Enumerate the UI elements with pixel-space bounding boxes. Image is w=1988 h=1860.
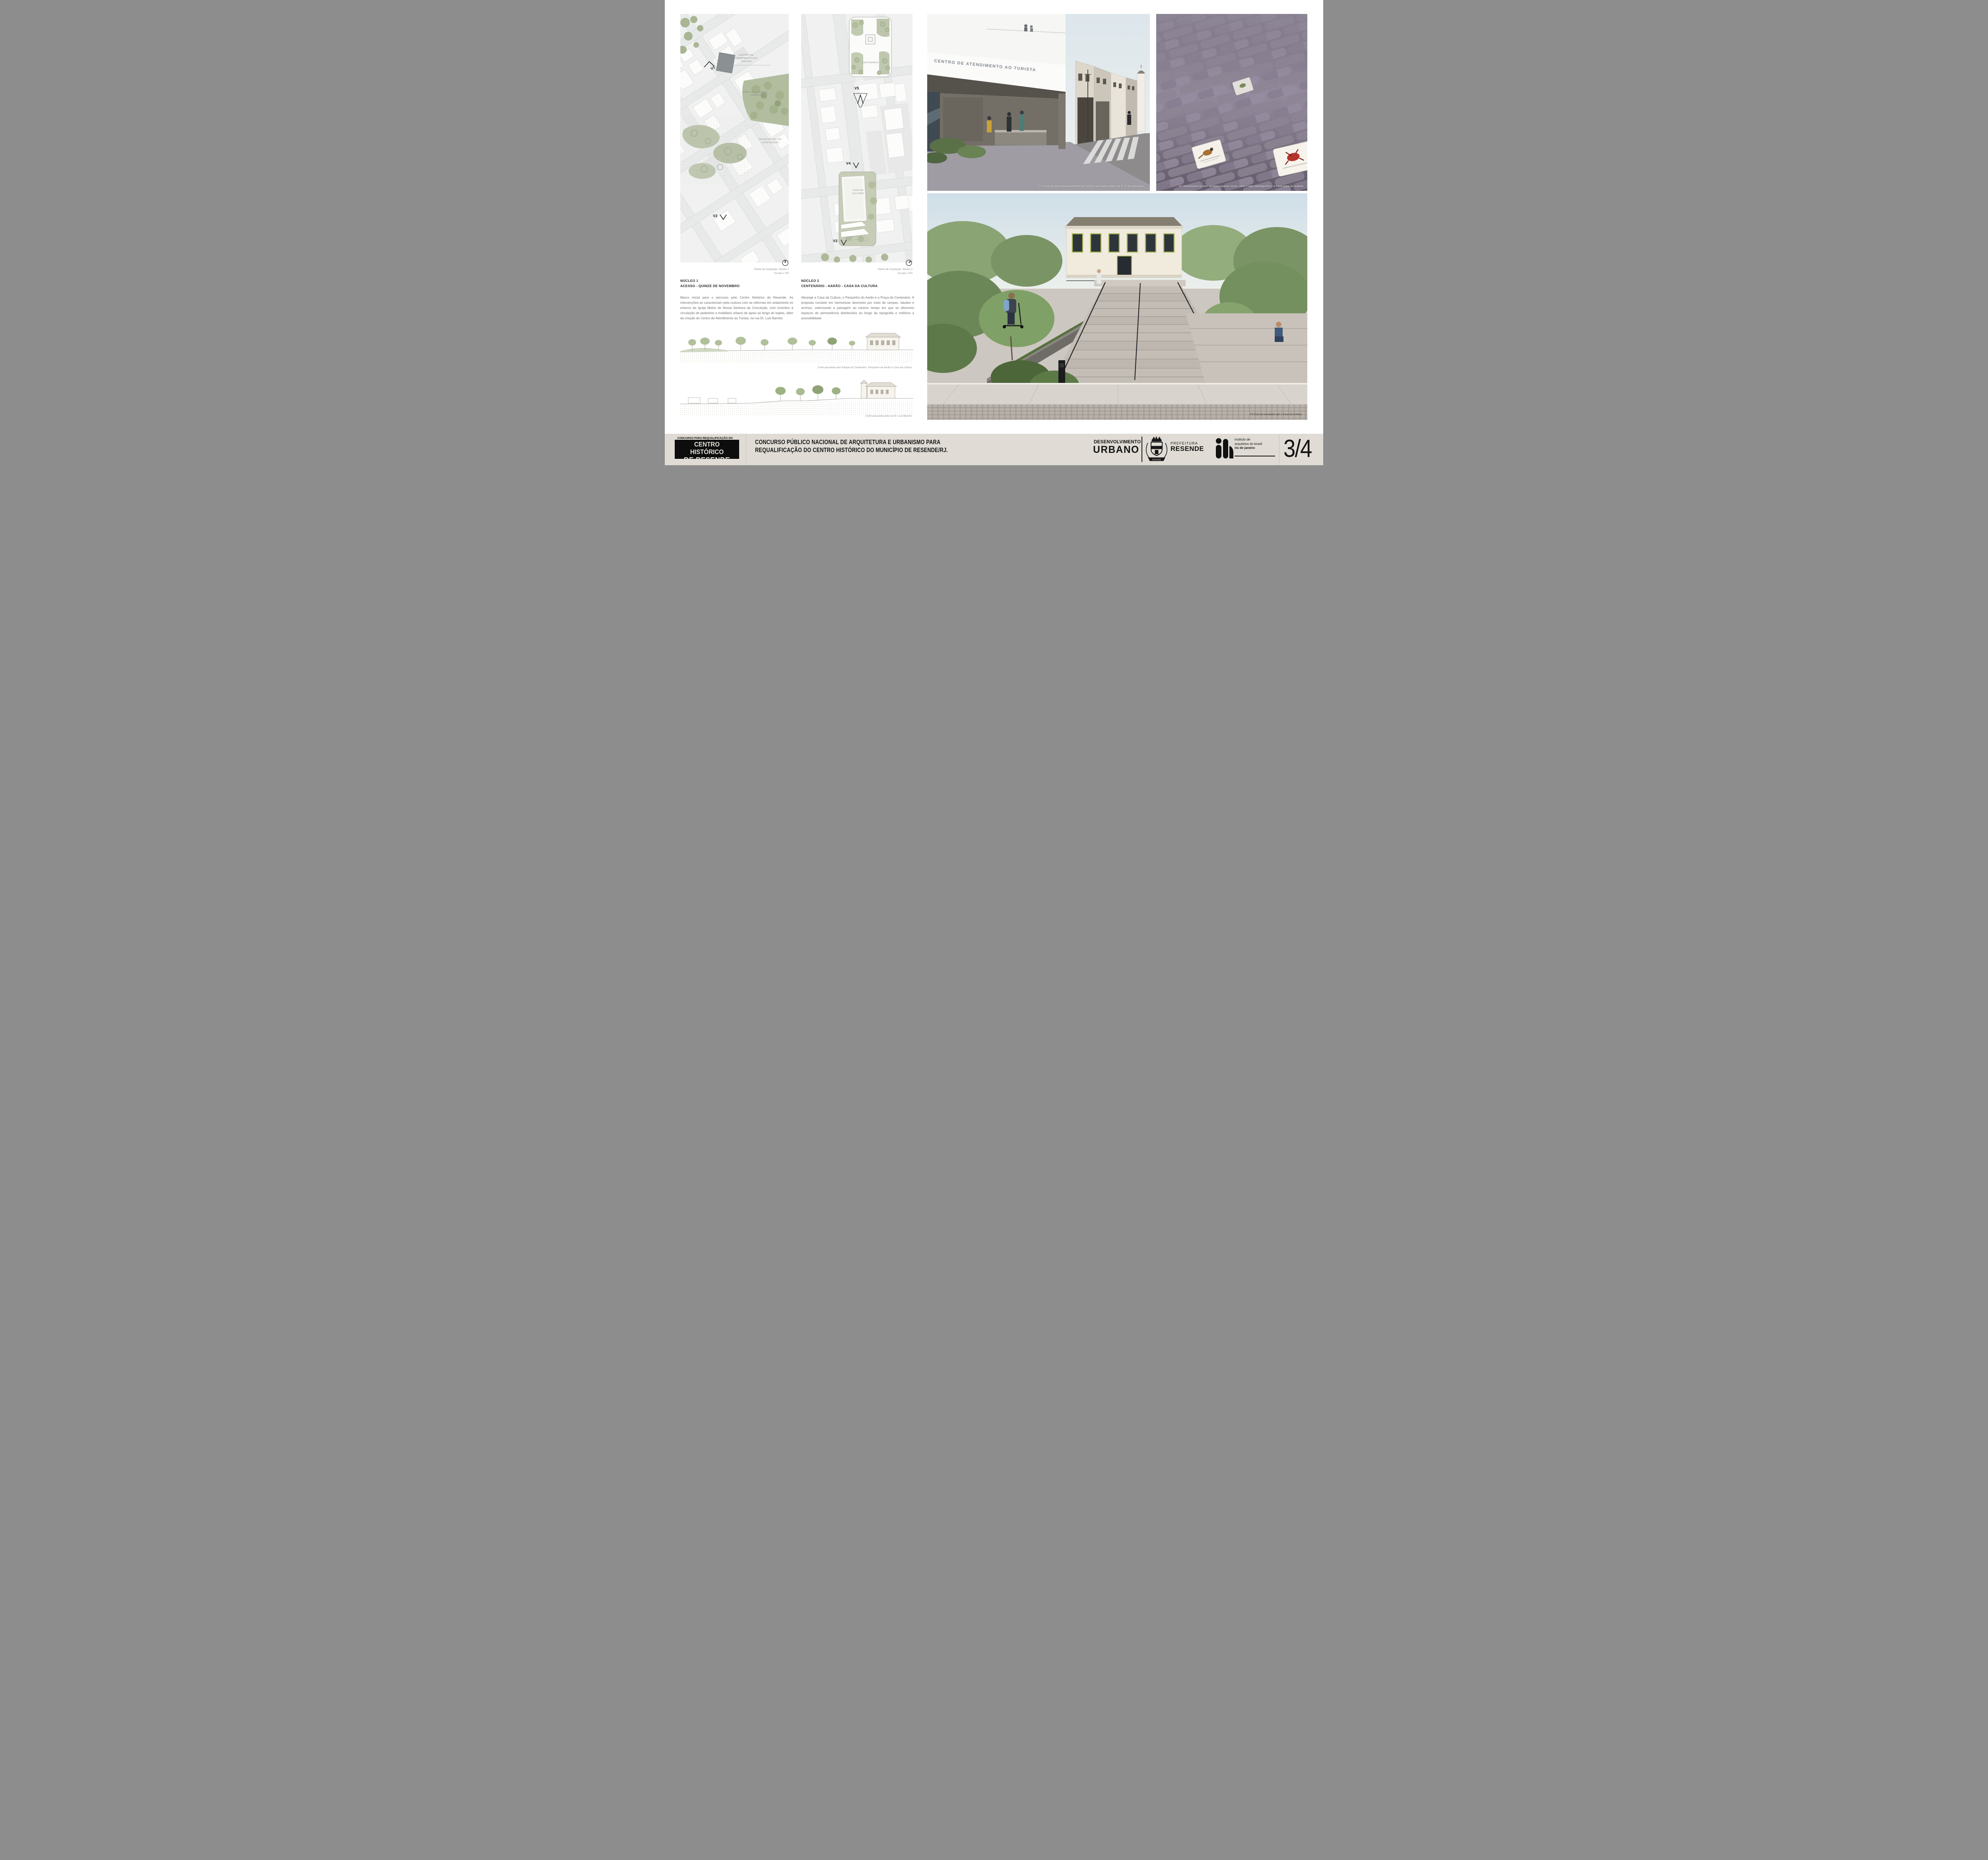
prefeitura-resende-logo: PREFEITURA RESENDE (1171, 441, 1204, 453)
tourist-center-building (927, 14, 1066, 149)
nucleo1-title: NÚCLEO 1 (680, 278, 793, 283)
view-label-v2: V2 (713, 214, 718, 218)
north-arrow-icon (905, 259, 912, 266)
footer-divider (746, 434, 746, 465)
competition-logo-line1: CONCURSO PARA REQUALIFICAÇÃO DO (675, 436, 735, 440)
site-plan-nucleo-1: CENTRO DE ATENDIMENTO AO TURISTA ÁREA PA… (680, 14, 789, 262)
section-building (866, 333, 901, 350)
logo-underline (678, 465, 736, 465)
nucleo2-body: Abrange a Casa da Cultura, o Parquinho d… (801, 295, 914, 321)
render-v3-caption: V3:Vista da escadaria até a Casa da Cult… (1250, 413, 1302, 416)
label-area-parque: ÁREA PARA PARQUE URBANO (734, 91, 777, 97)
section-2-drawing (680, 375, 913, 420)
iab-lines: instituto de arquitetos do brasil (1235, 438, 1262, 446)
render-v2: V2: Intervenções no piso: azulejos espéc… (1156, 14, 1307, 191)
render-v3-scene (927, 193, 1307, 420)
competition-logo-line2: CENTRO HISTÓRICO (677, 441, 736, 456)
plan2-caption-scale: Escala 1:750 (833, 272, 912, 276)
view-label-v3: V3 (833, 239, 838, 243)
iab-logo-text: instituto de arquitetos do brasil rio de… (1235, 438, 1262, 450)
footer-divider (1279, 434, 1279, 465)
view-label-v4: V4 (846, 161, 851, 165)
nucleo2-title: NÚCLEO 2 (801, 278, 914, 283)
praca-centenario (849, 17, 891, 77)
prefeitura-label: PREFEITURA (1171, 441, 1204, 445)
label-casa-cultura: CASA DA CULTURA (841, 189, 875, 195)
plan1-caption-scale: Escala 1:750 (709, 272, 789, 276)
page-number: 3/4 (1283, 435, 1317, 463)
terraces (1186, 313, 1307, 384)
section-trees (775, 385, 841, 401)
plan2-caption: Planta de Ampliação: Núcleo 2 Escala 1:7… (833, 268, 912, 276)
render-v1: CENTRO DE ATENDIMENTO AO TURISTA V1: Vis… (927, 14, 1150, 191)
north-arrow-icon (782, 259, 789, 266)
casa-da-cultura-building (1065, 217, 1183, 281)
iab-bold-line: rio de janeiro (1235, 446, 1262, 450)
render-v1-scene (927, 14, 1150, 191)
label-centenario: CENTENÁRIO (850, 61, 890, 64)
iab-logo-icon (1215, 437, 1233, 459)
desenvolvimento-urbano-logo: DESENVOLVIMENTO URBANO (1093, 439, 1140, 455)
section-small-buildings (688, 398, 736, 403)
section-drawing-1: Corte passando pelo Parque do Centenário… (680, 330, 913, 370)
desenvolvimento-label: DESENVOLVIMENTO (1094, 439, 1138, 445)
nucleo2-heading: NÚCLEO 2 CENTENÁRIO - AARÃO - CASA DA CU… (801, 278, 914, 289)
section-drawing-2: Corte passando pela rua Dr. Luis Barreto (680, 375, 913, 420)
section-trees (688, 337, 855, 351)
plan1-caption-title: Planta de Ampliação: Núcleo 1 (709, 268, 789, 272)
competition-title: CONCURSO PÚBLICO NACIONAL DE ARQUITETURA… (755, 439, 948, 454)
nucleo1-heading: NÚCLEO 1 ACESSO - QUINZE DE NOVEMBRO (680, 278, 793, 289)
render-v2-caption: V2: Intervenções no piso: azulejos espéc… (1178, 185, 1303, 188)
resende-label: RESENDE (1171, 445, 1204, 453)
render-v3: V3:Vista da escadaria até a Casa da Cult… (927, 193, 1307, 420)
presentation-board: CENTRO DE ATENDIMENTO AO TURISTA ÁREA PA… (665, 0, 1323, 465)
section-building-tower (860, 380, 897, 398)
competition-logo-line3: DE RESENDE (676, 456, 738, 464)
view-label-v5: V5 (854, 86, 859, 90)
section1-caption: Corte passando pelo Parque do Centenário… (680, 366, 912, 369)
nucleo2-subtitle: CENTENÁRIO - AARÃO - CASA DA CULTURA (801, 283, 914, 289)
competition-logo: CENTRO HISTÓRICO DE RESENDE (675, 440, 739, 459)
logo-separator (1142, 437, 1142, 462)
casa-da-cultura-block (839, 172, 877, 246)
render-v1-caption: V1: Vista do Centro de Atendimento ao Tu… (1039, 185, 1143, 188)
render-v2-scene (1156, 14, 1307, 191)
crest-banner-text: RESENDE (1152, 459, 1161, 461)
resende-coat-of-arms: RESENDE (1144, 435, 1168, 464)
cobblestone-band (927, 404, 1307, 420)
site-plan-nucleo-2: CENTENÁRIO CASA DA CULTURA V5 V4 V3 (801, 14, 912, 262)
urbano-label: URBANO (1093, 445, 1139, 455)
label-centro-atendimento: CENTRO DE ATENDIMENTO AO TURISTA (728, 54, 765, 63)
site-plan-nucleo-2-drawing (801, 14, 912, 262)
crosswalk (855, 78, 864, 83)
nucleo1-body: Marco inicial para o percurso pelo Centr… (680, 295, 793, 321)
section-1-drawing (680, 330, 913, 370)
nucleo1-subtitle: ACESSO - QUINZE DE NOVEMBRO (680, 283, 793, 289)
pavement (927, 384, 1307, 404)
section2-caption: Corte passando pela rua Dr. Luis Barreto (680, 415, 912, 417)
plan1-caption: Planta de Ampliação: Núcleo 1 Escala 1:7… (709, 268, 789, 276)
label-intervencao: INTERVENÇÃO EM CONSTRUÇÃO (748, 138, 789, 144)
plan2-caption-title: Planta de Ampliação: Núcleo 2 (833, 268, 912, 272)
iab-underline (1235, 456, 1275, 456)
